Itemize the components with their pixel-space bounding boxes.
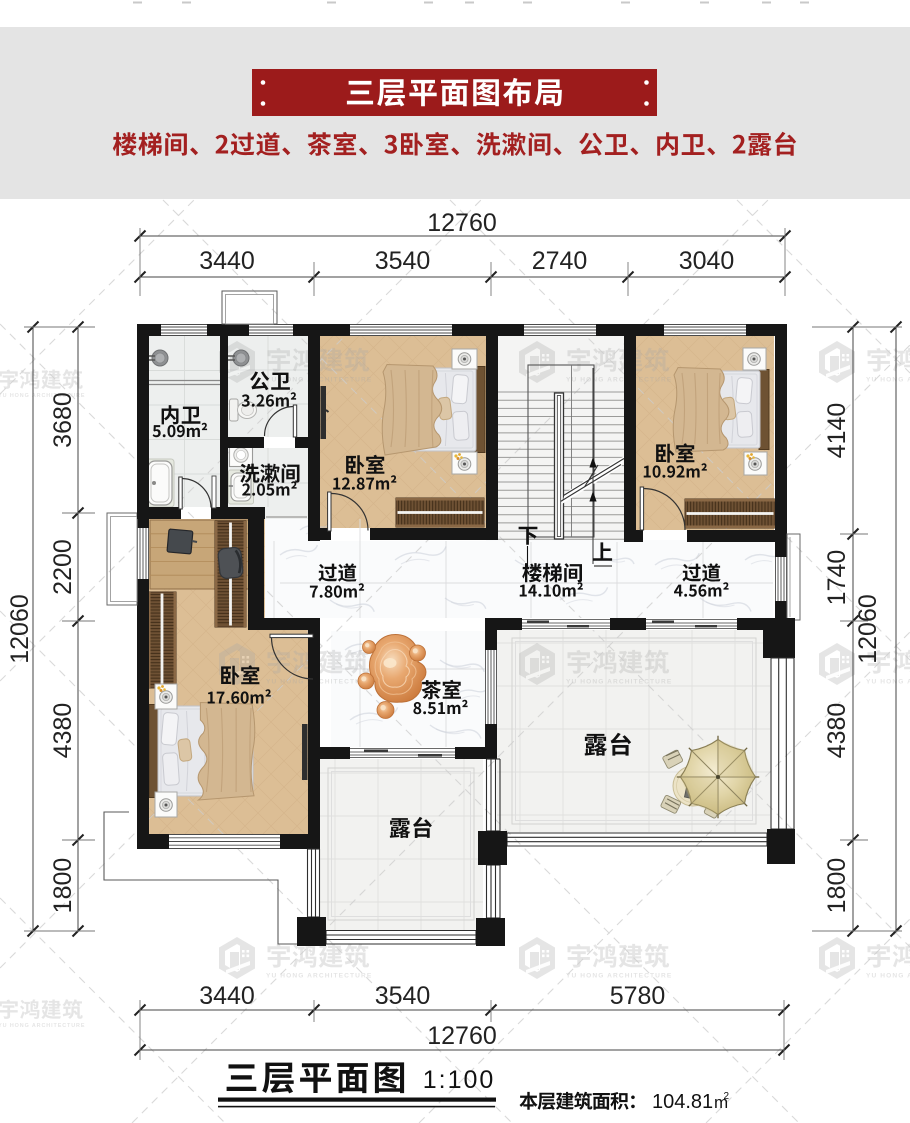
svg-text:2740: 2740 xyxy=(532,247,588,275)
svg-text:1740: 1740 xyxy=(823,550,851,606)
svg-text:104.81: 104.81 xyxy=(652,1091,713,1113)
svg-text:2: 2 xyxy=(724,1091,730,1102)
svg-text:2200: 2200 xyxy=(49,539,77,595)
svg-text:4140: 4140 xyxy=(823,403,851,459)
svg-text:4380: 4380 xyxy=(49,703,77,759)
svg-text:3440: 3440 xyxy=(199,982,255,1010)
svg-text:3540: 3540 xyxy=(375,247,431,275)
svg-text:5780: 5780 xyxy=(610,982,666,1010)
svg-text:1:100: 1:100 xyxy=(423,1066,496,1094)
svg-text:4380: 4380 xyxy=(823,703,851,759)
svg-text:12060: 12060 xyxy=(854,594,882,664)
svg-text:3040: 3040 xyxy=(679,247,735,275)
svg-text:12060: 12060 xyxy=(6,594,34,664)
svg-text:12760: 12760 xyxy=(427,209,497,237)
svg-text:3440: 3440 xyxy=(199,247,255,275)
svg-text:12760: 12760 xyxy=(427,1022,497,1050)
svg-text:1800: 1800 xyxy=(823,858,851,914)
svg-text:1800: 1800 xyxy=(49,858,77,914)
svg-text:3540: 3540 xyxy=(375,982,431,1010)
svg-text:3680: 3680 xyxy=(49,392,77,448)
